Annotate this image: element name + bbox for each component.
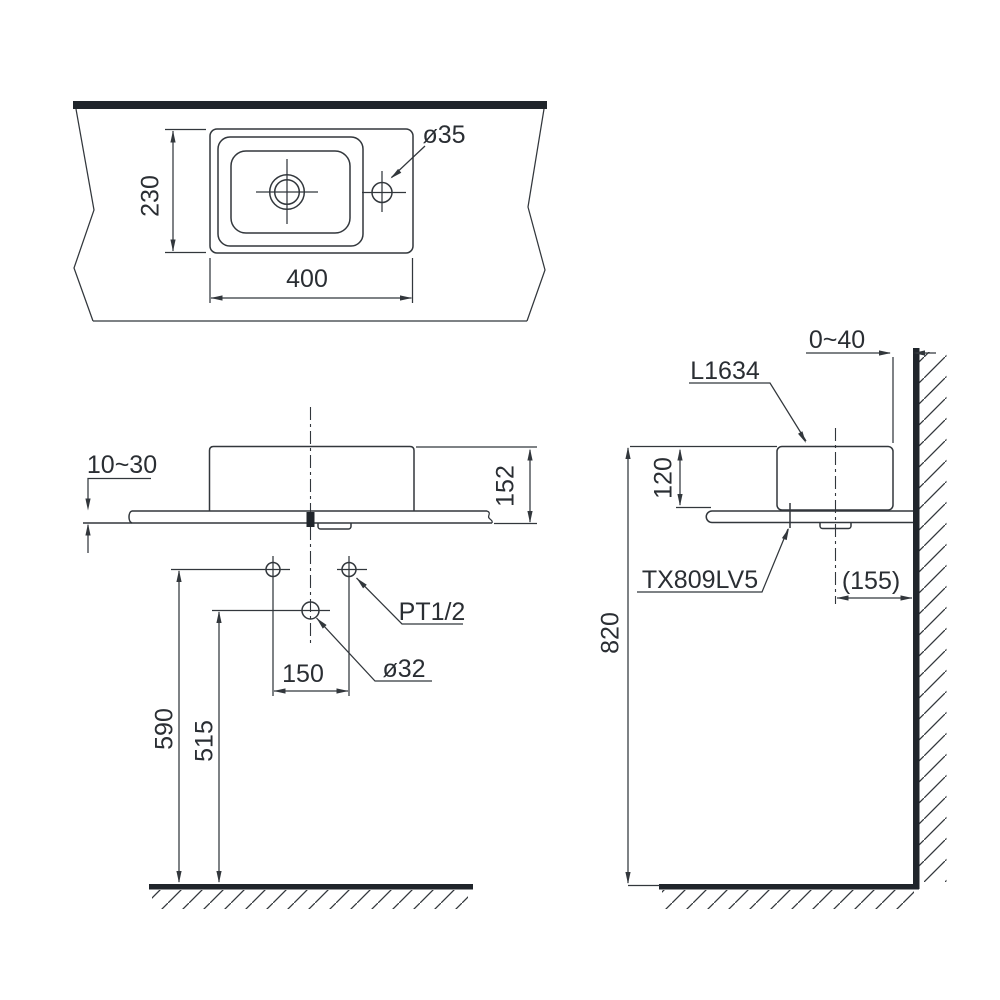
dim-basin-height: 120	[650, 449, 711, 508]
drain-to-wall-label: (155)	[842, 567, 900, 595]
callout-basin-model: L1634	[689, 357, 806, 443]
washbasin-installation-drawing: 230 400 ø35	[0, 0, 1000, 1000]
supply-height-label: 590	[151, 708, 179, 750]
counter-thickness-label: 10~30	[87, 451, 157, 479]
counter-left-end	[129, 511, 132, 523]
floor-hatch-front	[152, 890, 468, 909]
floor-hatch-side	[662, 890, 914, 909]
drain-tailpiece-front	[307, 512, 315, 527]
dim-rim-height: 152	[416, 447, 537, 524]
drain-height-label: 515	[191, 720, 219, 762]
dim-drain-to-wall: (155)	[837, 567, 913, 601]
counter-right-break	[487, 511, 492, 523]
counter-break-left	[74, 109, 94, 321]
counter-left-cap	[706, 511, 712, 523]
dim-width: 400	[210, 258, 413, 303]
technical-drawing-page: 230 400 ø35	[0, 0, 1000, 1000]
dim-width-label: 400	[286, 265, 328, 293]
dim-depth: 230	[137, 130, 206, 253]
wall-clearance-label: 0~40	[809, 326, 865, 354]
wall-line-top-view	[73, 101, 547, 109]
basin-height-label: 120	[650, 457, 678, 499]
callout-supply-thread: PT1/2	[357, 578, 466, 626]
wall-line-side	[913, 348, 920, 889]
dim-counter-thickness: 10~30	[85, 451, 157, 553]
basin-outline-front	[210, 447, 415, 512]
floor-line-side	[659, 884, 919, 890]
rim-height-label: 152	[492, 465, 520, 507]
dim-counter-height: 820	[597, 447, 631, 884]
faucet-hole-dia-label: ø35	[422, 121, 465, 149]
floor-line-front	[149, 884, 473, 890]
top-view: 230 400 ø35	[73, 101, 547, 321]
dim-drain-height: 515	[191, 611, 222, 883]
dim-supply-spacing: 150	[274, 660, 349, 694]
supply-thread-label: PT1/2	[399, 598, 466, 626]
faucet-model-label: TX809LV5	[642, 566, 758, 594]
wall-hatch	[920, 352, 947, 882]
basin-model-label: L1634	[690, 357, 760, 385]
side-view: 0~40 L1634 120 TX809LV5 (155)	[597, 326, 947, 909]
drain-fitting-front	[318, 523, 351, 529]
supply-spacing-label: 150	[282, 660, 324, 688]
callout-drain-dia: ø32	[317, 618, 433, 683]
drain-dia-label: ø32	[382, 655, 425, 683]
counter-break-right	[527, 109, 545, 321]
counter-height-label: 820	[597, 612, 625, 654]
dim-supply-height: 590	[151, 570, 182, 883]
front-view: 10~30 152 150 PT1/2	[83, 407, 537, 909]
dim-depth-label: 230	[137, 175, 165, 217]
callout-faucet-model: TX809LV5	[637, 528, 789, 594]
